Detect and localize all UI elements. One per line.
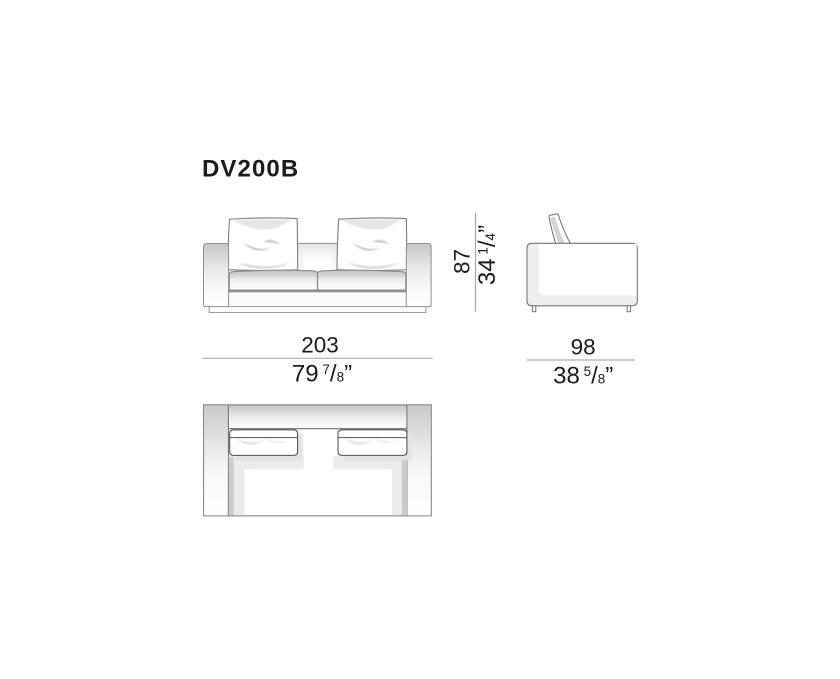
svg-text:34 1/4”: 34 1/4”	[474, 225, 501, 285]
svg-text:87: 87	[449, 249, 474, 274]
svg-text:203: 203	[301, 332, 339, 357]
svg-text:DV200B: DV200B	[202, 156, 299, 183]
svg-text:38 5/8”: 38 5/8”	[553, 362, 613, 389]
svg-text:98: 98	[571, 335, 596, 360]
svg-text:79 7/8”: 79 7/8”	[292, 360, 352, 387]
